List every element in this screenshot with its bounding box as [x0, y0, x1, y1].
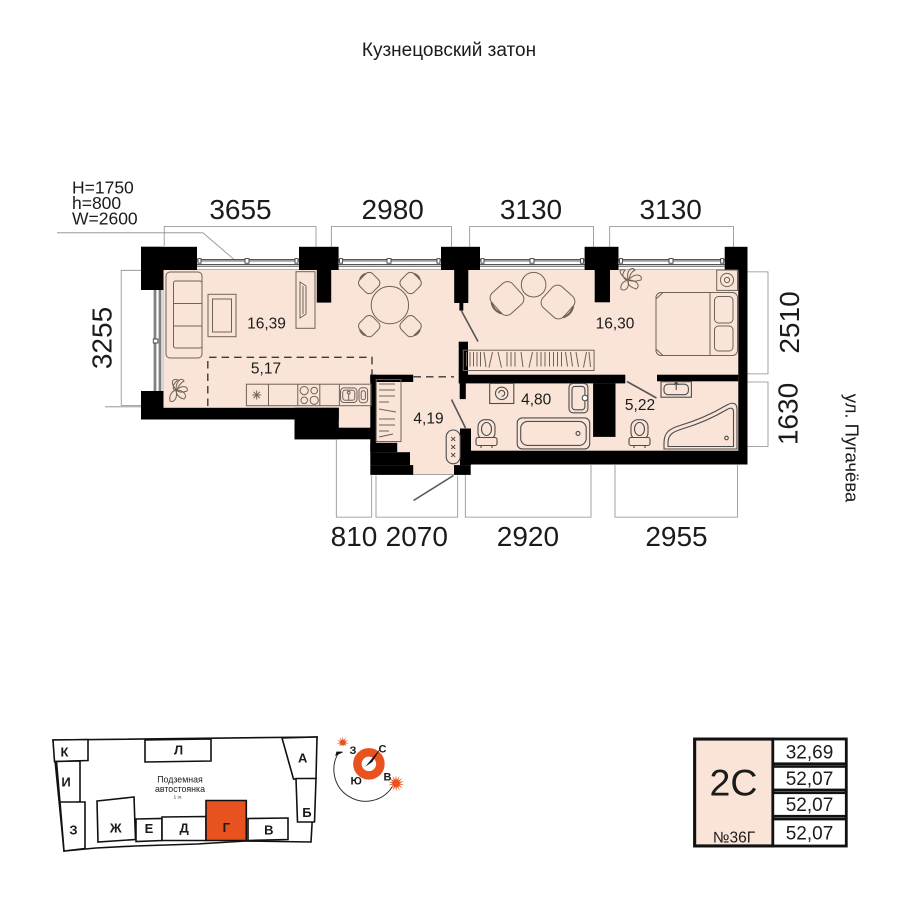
svg-text:52,07: 52,07 [786, 823, 834, 844]
svg-text:4,80: 4,80 [521, 392, 552, 409]
svg-text:Е: Е [145, 821, 154, 836]
svg-text:3130: 3130 [500, 194, 562, 225]
svg-text:3655: 3655 [209, 194, 271, 225]
svg-text:№36Г: №36Г [713, 830, 756, 847]
svg-text:3255: 3255 [87, 307, 118, 369]
svg-text:16,30: 16,30 [596, 316, 635, 333]
svg-text:5,22: 5,22 [625, 397, 655, 414]
svg-text:автостоянка: автостоянка [155, 784, 205, 794]
svg-text:В: В [384, 772, 392, 784]
svg-text:И: И [61, 775, 70, 790]
svg-text:52,07: 52,07 [786, 795, 834, 816]
svg-text:16,39: 16,39 [247, 316, 286, 333]
svg-text:52,07: 52,07 [786, 769, 834, 790]
svg-text:Г: Г [223, 820, 231, 835]
svg-text:1630: 1630 [773, 383, 804, 445]
svg-text:1 эт.: 1 эт. [174, 795, 183, 800]
svg-text:5,17: 5,17 [251, 361, 281, 378]
svg-text:Кузнецовский затон: Кузнецовский затон [362, 40, 536, 61]
svg-text:З: З [69, 823, 77, 838]
svg-text:2070: 2070 [386, 521, 448, 552]
svg-text:Ж: Ж [109, 821, 122, 836]
svg-text:W=2600: W=2600 [72, 209, 138, 229]
svg-text:2510: 2510 [774, 291, 805, 353]
svg-text:810: 810 [331, 521, 378, 552]
svg-text:Б: Б [302, 805, 311, 820]
svg-text:2С: 2С [710, 762, 758, 804]
svg-text:З: З [350, 745, 357, 757]
svg-text:В: В [264, 823, 273, 838]
svg-text:Л: Л [174, 743, 183, 758]
svg-text:2955: 2955 [645, 521, 707, 552]
svg-text:32,69: 32,69 [786, 742, 834, 763]
svg-text:2920: 2920 [497, 521, 559, 552]
svg-text:К: К [61, 745, 69, 760]
svg-text:ул. Пугачёва: ул. Пугачёва [842, 394, 863, 503]
svg-text:А: А [298, 751, 308, 766]
svg-text:4,19: 4,19 [413, 411, 443, 428]
svg-text:С: С [379, 744, 387, 756]
svg-text:2980: 2980 [362, 194, 424, 225]
svg-text:Ю: Ю [351, 776, 362, 788]
svg-text:Д: Д [179, 821, 189, 836]
svg-text:3130: 3130 [640, 194, 702, 225]
